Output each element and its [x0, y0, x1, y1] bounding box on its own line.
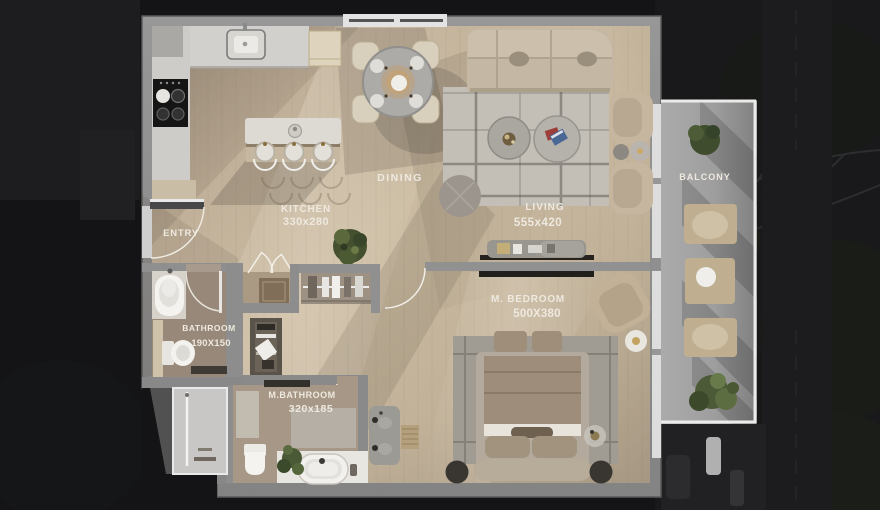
svg-text:ENTRY: ENTRY [163, 228, 199, 239]
svg-text:LIVING: LIVING [525, 202, 564, 213]
svg-text:BATHROOM: BATHROOM [182, 323, 235, 333]
svg-text:DINING: DINING [377, 172, 423, 184]
svg-text:500X380: 500X380 [513, 308, 560, 320]
svg-text:190X150: 190X150 [191, 338, 230, 349]
svg-text:555x420: 555x420 [514, 217, 562, 229]
svg-text:M. BEDROOM: M. BEDROOM [491, 294, 565, 305]
svg-text:M.BATHROOM: M.BATHROOM [268, 390, 335, 400]
svg-text:330x280: 330x280 [283, 216, 329, 228]
svg-text:BALCONY: BALCONY [679, 172, 731, 182]
svg-text:KITCHEN: KITCHEN [281, 204, 331, 215]
svg-text:320x185: 320x185 [289, 403, 333, 415]
